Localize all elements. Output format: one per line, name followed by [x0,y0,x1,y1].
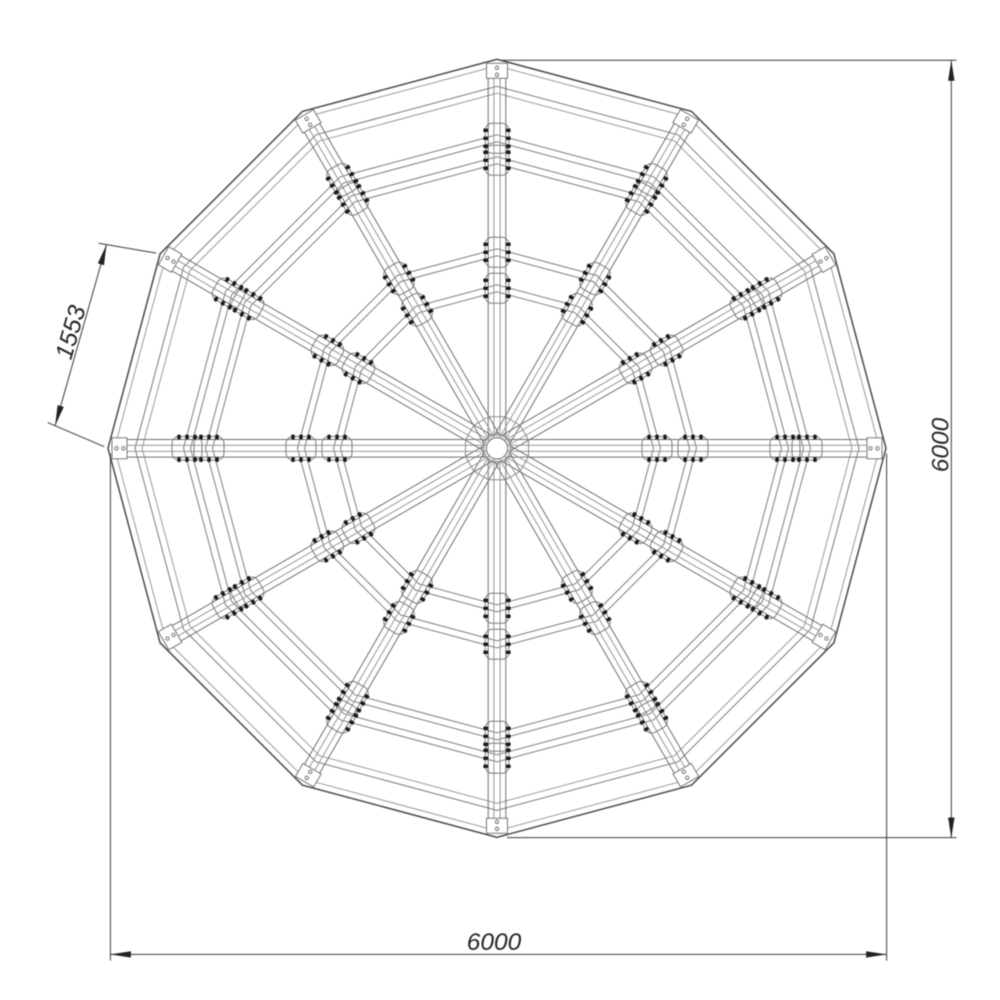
svg-text:6000: 6000 [928,417,955,472]
svg-text:6000: 6000 [467,929,522,956]
